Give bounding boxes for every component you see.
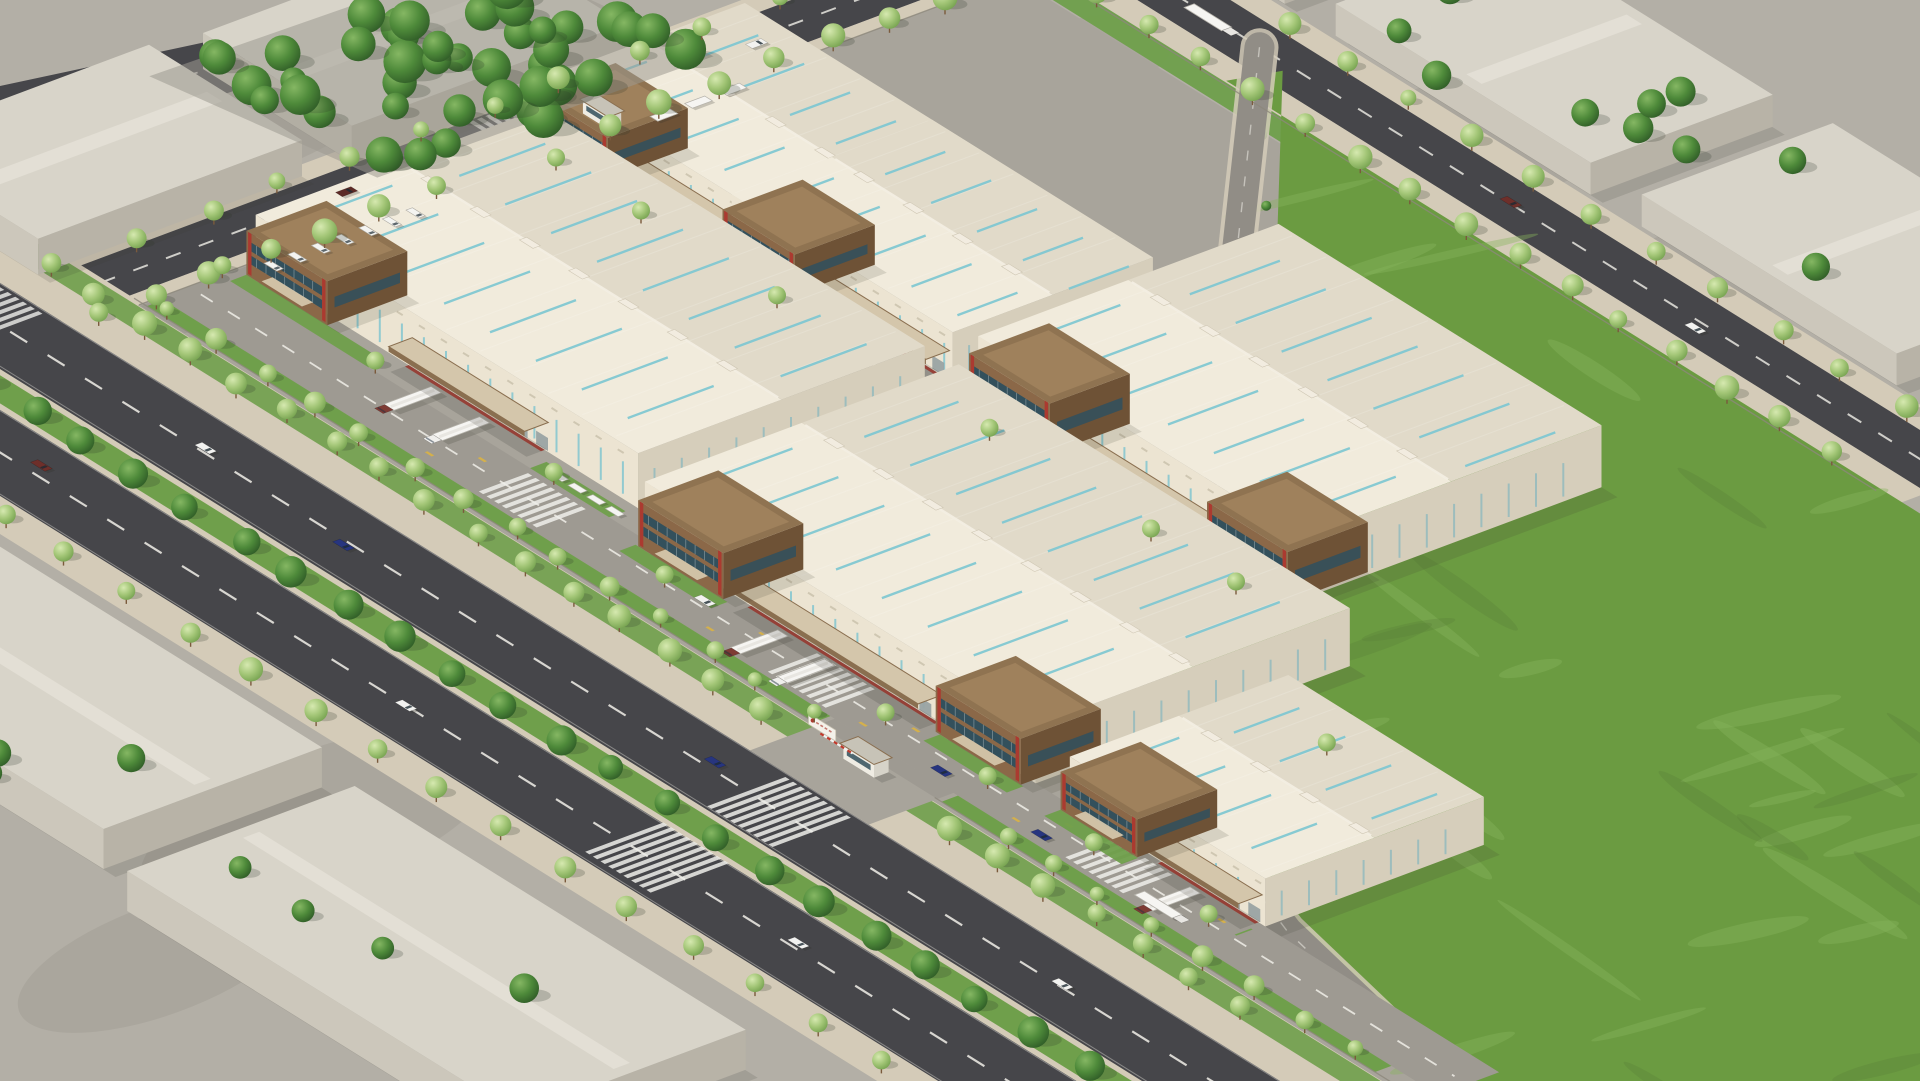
industrial-park-scene (0, 0, 1920, 1081)
aerial-render-industrial-park (0, 0, 1920, 1081)
